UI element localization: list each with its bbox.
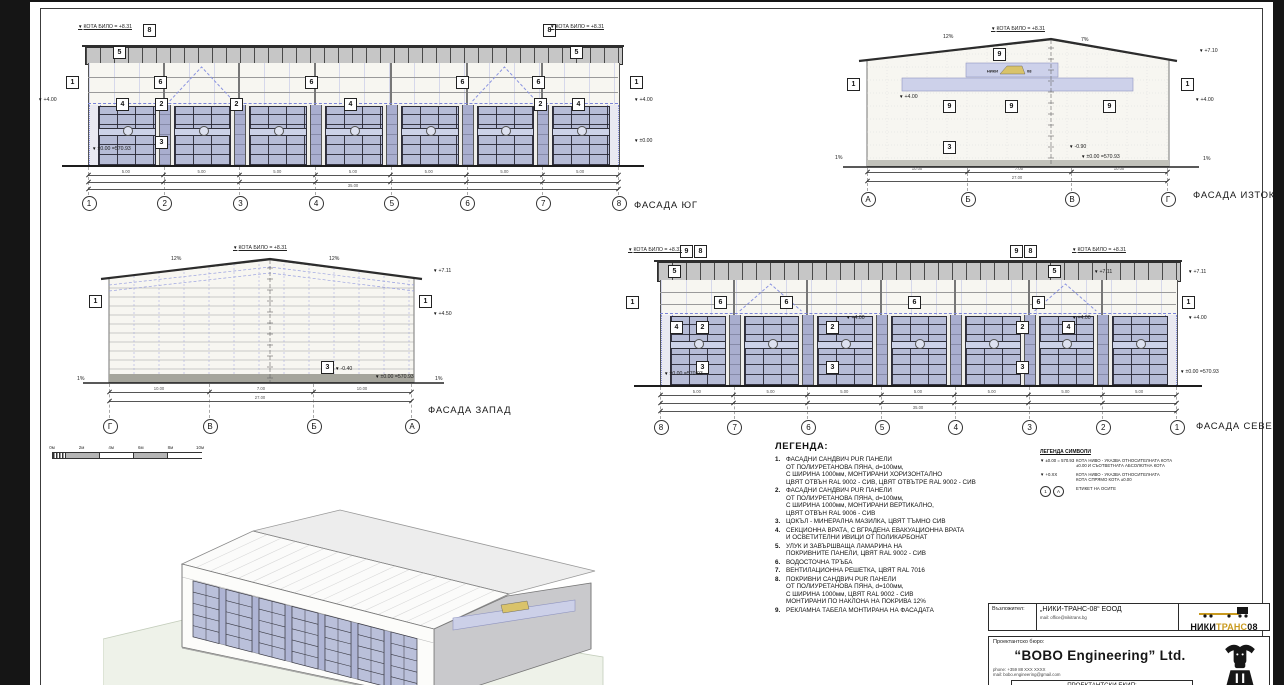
note-text: +4.50 xyxy=(438,311,451,317)
level-note: ▼КОТА БИЛО = +8.31 xyxy=(628,247,682,253)
truck-icon xyxy=(1193,605,1255,618)
level-flag-icon: ▼ xyxy=(92,146,96,151)
scale-label: 4м xyxy=(103,445,119,450)
level-flag-icon: ▼ xyxy=(1072,315,1076,320)
dim-total: 27.00 xyxy=(250,395,270,400)
callout-1: 1 xyxy=(847,78,860,91)
callout-2: 2 xyxy=(696,321,709,334)
symbol-text: ЕТИКЕТ НА ОСИТЕ xyxy=(1076,486,1116,491)
dimension-line xyxy=(867,181,1167,182)
callout-1: 1 xyxy=(1182,296,1195,309)
legend-item-text: СЕКЦИОННА ВРАТА, С ВГРАДЕНА ЕВАКУАЦИОННА… xyxy=(786,527,964,542)
callout-5: 5 xyxy=(570,46,583,59)
elevation-note: ▼±0.00 =570.93 xyxy=(375,374,414,380)
scale-label: 6м xyxy=(133,445,149,450)
legend-item-text: ВОДОСТОЧНА ТРЪБА xyxy=(786,559,853,567)
legend-item-number: 4. xyxy=(775,527,786,542)
legend-item-number: 2. xyxy=(775,487,786,517)
elevation-note: 1% xyxy=(1203,156,1211,162)
elevation-note: ▼+4.00 xyxy=(1072,315,1091,321)
callout-3: 3 xyxy=(826,361,839,374)
legend-item: 7.ВЕНТИЛАЦИОННА РЕШЕТКА, ЦВЯТ RAL 7016 xyxy=(775,567,1050,575)
grid-bubble: Б xyxy=(961,192,976,207)
logo-part3: 08 xyxy=(1247,622,1257,632)
elevation-note: ▼+4.00 xyxy=(1195,97,1214,103)
note-text: +7.11 xyxy=(1099,269,1112,275)
nikitrans-logo: НИКИТРАНС08 xyxy=(1179,604,1269,630)
elevation-note: ▼+4.00 xyxy=(899,94,918,100)
legend-item-text: ФАСАДНИ САНДВИЧ PUR ПАНЕЛИ ОТ ПОЛИУРЕТАН… xyxy=(786,456,976,486)
scale-segment xyxy=(133,453,168,458)
callout-5: 5 xyxy=(668,265,681,278)
callout-4: 4 xyxy=(116,98,129,111)
elevation-note: 1% xyxy=(77,376,85,382)
symbols-legend-items: ▼ ±0.00 = 570.93КОТА НИВО - УКАЗВА ОТНОС… xyxy=(1040,458,1220,497)
note-text: ±0.00 =570.93 xyxy=(97,146,130,152)
callout-8: 8 xyxy=(694,245,707,258)
level-flag-icon: ▼ xyxy=(846,315,850,320)
elevation-note: ▼+4.00 xyxy=(38,97,57,103)
elevation-note: ▼+4.50 xyxy=(433,311,452,317)
note-text: КОТА БИЛО = +8.31 xyxy=(996,26,1045,32)
level-flag-icon: ▼ xyxy=(628,247,632,252)
elevation-note: ▼±0.00 xyxy=(634,138,652,144)
grid-bubble: А xyxy=(861,192,876,207)
symbols-legend: ЛЕГЕНДА СИМВОЛИ ▼ ±0.00 = 570.93КОТА НИВ… xyxy=(1040,449,1220,500)
note-text: КОТА БИЛО = +8.31 xyxy=(1077,247,1126,253)
title-block-client-row: Възложител: „НИКИ-ТРАНС-08“ ЕООД mail: o… xyxy=(988,603,1270,631)
callout-2: 2 xyxy=(1016,321,1029,334)
callout-4: 4 xyxy=(670,321,683,334)
callout-9: 9 xyxy=(943,100,956,113)
legend-item-number: 7. xyxy=(775,567,786,575)
dim-value: 10.00 xyxy=(1111,166,1127,171)
callout-6: 6 xyxy=(456,76,469,89)
scale-hatch xyxy=(53,453,65,458)
grid-bubble: 5 xyxy=(875,420,890,435)
legend-items: 1.ФАСАДНИ САНДВИЧ PUR ПАНЕЛИ ОТ ПОЛИУРЕТ… xyxy=(775,456,1050,614)
callout-1: 1 xyxy=(89,295,102,308)
grid-bubble: 3 xyxy=(233,196,248,211)
level-note: ▼КОТА БИЛО = +8.31 xyxy=(233,245,287,251)
elevation-note: ▼-0.40 xyxy=(335,366,352,372)
note-text: -0.40 xyxy=(340,366,352,372)
note-text: ±0.00 =570.93 xyxy=(669,371,702,377)
legend-item-text: ФАСАДНИ САНДВИЧ PUR ПАНЕЛИ ОТ ПОЛИУРЕТАН… xyxy=(786,487,934,517)
note-text: КОТА БИЛО = +8.31 xyxy=(238,245,287,251)
symbol-item: 1АЕТИКЕТ НА ОСИТЕ xyxy=(1040,486,1220,497)
symbol-text: КОТА НИВО - УКАЗВА ОТНОСИТЕЛНАТА КОТА ±0… xyxy=(1076,458,1172,469)
level-flag-icon: ▼ xyxy=(335,366,339,371)
svg-text:НИКИ: НИКИ xyxy=(987,69,998,74)
level-flag-icon: ▼ xyxy=(233,245,237,250)
legend: ЛЕГЕНДА: 1.ФАСАДНИ САНДВИЧ PUR ПАНЕЛИ ОТ… xyxy=(775,441,1050,615)
callout-6: 6 xyxy=(305,76,318,89)
grid-bubble: 8 xyxy=(654,420,669,435)
bull-emblem-icon xyxy=(1211,637,1269,685)
dim-value: 10.00 xyxy=(354,386,370,391)
note-text: 1% xyxy=(1203,156,1211,162)
note-text: 12% xyxy=(171,256,181,262)
elevation-note: ▼+7.11 xyxy=(1094,269,1112,275)
elevation-note: ▼+7.11 xyxy=(1188,269,1206,275)
facade-label: ФАСАДА ЮГ xyxy=(634,200,698,211)
level-flag-icon: ▼ xyxy=(38,97,42,102)
bureau-cell: Проектантско бюро: “BOBO Engineering” Lt… xyxy=(989,637,1211,685)
note-text: 1% xyxy=(835,155,843,161)
note-text: +4.00 xyxy=(43,97,56,103)
symbol-glyph: ▼ +0.XX xyxy=(1040,472,1076,477)
callout-2: 2 xyxy=(230,98,243,111)
symbol-item: ▼ +0.XXКОТА НИВО - УКАЗВА ОТНОСИТЕЛНАТА … xyxy=(1040,472,1220,483)
callout-8: 8 xyxy=(1024,245,1037,258)
note-text: -0.90 xyxy=(1074,144,1086,150)
client-cell: „НИКИ-ТРАНС-08“ ЕООД mail: office@nikitr… xyxy=(1037,604,1179,630)
elevation-note: 12% xyxy=(943,34,953,40)
grid-bubble: 8 xyxy=(612,196,627,211)
grid-bubble: 6 xyxy=(460,196,475,211)
level-flag-icon: ▼ xyxy=(1199,48,1203,53)
elevation-note: ▼+4.00 xyxy=(846,315,865,321)
callout-6: 6 xyxy=(1032,296,1045,309)
level-flag-icon: ▼ xyxy=(1094,269,1098,274)
facade-north: 876543215.005.005.005.005.005.005.0035.0… xyxy=(624,243,1273,448)
facade-west: ГВБА10.007.0010.0027.00113▼КОТА БИЛО = +… xyxy=(83,243,513,443)
legend-item-text: ПОКРИВНИ САНДВИЧ PUR ПАНЕЛИ ОТ ПОЛИУРЕТА… xyxy=(786,576,926,606)
level-flag-icon: ▼ xyxy=(1072,247,1076,252)
logo-part1: НИКИ xyxy=(1190,622,1216,632)
title-block: Възложител: „НИКИ-ТРАНС-08“ ЕООД mail: o… xyxy=(988,600,1270,685)
note-text: 12% xyxy=(943,34,953,40)
symbol-text: КОТА НИВО - УКАЗВА ОТНОСИТЕЛНАТА КОТА СП… xyxy=(1076,472,1160,483)
note-text: +4.00 xyxy=(1077,315,1090,321)
note-text: 12% xyxy=(329,256,339,262)
legend-item: 6.ВОДОСТОЧНА ТРЪБА xyxy=(775,559,1050,567)
dim-value: 10.00 xyxy=(151,386,167,391)
symbols-legend-title: ЛЕГЕНДА СИМВОЛИ xyxy=(1040,449,1220,455)
dim-value: 7.00 xyxy=(1011,166,1027,171)
note-text: +4.00 xyxy=(904,94,917,100)
note-text: +4.00 xyxy=(639,97,652,103)
elevation-note: ▼+7.11 xyxy=(433,268,451,274)
callout-3: 3 xyxy=(943,141,956,154)
note-text: ±0.00 =570.93 xyxy=(1086,154,1119,160)
note-text: +4.00 xyxy=(1193,315,1206,321)
callout-6: 6 xyxy=(714,296,727,309)
title-block-bureau-row: Проектантско бюро: “BOBO Engineering” Lt… xyxy=(988,636,1270,685)
callout-4: 4 xyxy=(1062,321,1075,334)
grid-bubble: 7 xyxy=(536,196,551,211)
level-flag-icon: ▼ xyxy=(433,311,437,316)
note-text: +4.00 xyxy=(1200,97,1213,103)
legend-item-number: 8. xyxy=(775,576,786,606)
grid-bubble: Б xyxy=(307,419,322,434)
note-text: ±0.00 =570.93 xyxy=(380,374,413,380)
level-flag-icon: ▼ xyxy=(991,26,995,31)
level-flag-icon: ▼ xyxy=(634,97,638,102)
callout-5: 5 xyxy=(1048,265,1061,278)
bureau-name: “BOBO Engineering” Ltd. xyxy=(993,648,1207,663)
scale-segment xyxy=(65,453,100,458)
level-flag-icon: ▼ xyxy=(634,138,638,143)
elevation-note: ▼±0.00 =570.93 xyxy=(1081,154,1120,160)
level-flag-icon: ▼ xyxy=(1195,97,1199,102)
grid-bubble: 2 xyxy=(1096,420,1111,435)
level-note: ▼КОТА БИЛО = +8.31 xyxy=(550,24,604,30)
callout-8: 8 xyxy=(143,24,156,37)
note-text: +7.11 xyxy=(1193,269,1206,275)
client-mail: mail: office@nikitrans.bg xyxy=(1040,615,1175,620)
callout-1: 1 xyxy=(419,295,432,308)
callout-9: 9 xyxy=(1005,100,1018,113)
callout-6: 6 xyxy=(780,296,793,309)
callout-1: 1 xyxy=(626,296,639,309)
client-name: „НИКИ-ТРАНС-08“ ЕООД xyxy=(1040,606,1175,613)
logo-text: НИКИТРАНС08 xyxy=(1182,623,1266,632)
callout-6: 6 xyxy=(532,76,545,89)
elevation-note: ▼-0.90 xyxy=(1069,144,1086,150)
note-text: +4.00 xyxy=(851,315,864,321)
grid-bubble: 4 xyxy=(309,196,324,211)
bracing-overlay xyxy=(624,243,1273,448)
dimension-line xyxy=(109,392,411,393)
scale-label: 8м xyxy=(162,445,178,450)
callout-1: 1 xyxy=(1181,78,1194,91)
level-flag-icon: ▼ xyxy=(433,268,437,273)
grid-bubble: 1 xyxy=(1170,420,1185,435)
facade-east: НИКИ08АБВГ10.007.0010.0027.009999113▼КОТ… xyxy=(843,24,1273,224)
legend-item: 1.ФАСАДНИ САНДВИЧ PUR ПАНЕЛИ ОТ ПОЛИУРЕТ… xyxy=(775,456,1050,486)
callout-9: 9 xyxy=(1103,100,1116,113)
legend-item: 2.ФАСАДНИ САНДВИЧ PUR ПАНЕЛИ ОТ ПОЛИУРЕТ… xyxy=(775,487,1050,517)
callout-9: 9 xyxy=(993,48,1006,61)
level-flag-icon: ▼ xyxy=(1081,154,1085,159)
elevation-note: 7% xyxy=(1081,37,1089,43)
scale-segment xyxy=(99,453,134,458)
legend-item-number: 5. xyxy=(775,543,786,558)
bracing-overlay xyxy=(58,18,708,223)
level-note: ▼КОТА БИЛО = +8.31 xyxy=(78,24,132,30)
note-text: 7% xyxy=(1081,37,1089,43)
scale-segment xyxy=(167,453,202,458)
callout-9: 9 xyxy=(1010,245,1023,258)
iso-3d-svg xyxy=(103,497,618,685)
scale-bar-strip xyxy=(52,452,202,459)
callout-6: 6 xyxy=(908,296,921,309)
level-flag-icon: ▼ xyxy=(664,371,668,376)
grid-bubble: А xyxy=(405,419,420,434)
note-text: 1% xyxy=(77,376,85,382)
legend-item: 3.ЦОКЪЛ - МИНЕРАЛНА МАЗИЛКА, ЦВЯТ ТЪМНО … xyxy=(775,518,1050,526)
bureau-contacts: phone: +359 88 XXX XXXX mail: bobo.engin… xyxy=(993,667,1207,677)
facade-label: ФАСАДА ЗАПАД xyxy=(428,405,511,416)
svg-text:08: 08 xyxy=(1027,69,1032,74)
legend-item-number: 3. xyxy=(775,518,786,526)
symbol-item: ▼ ±0.00 = 570.93КОТА НИВО - УКАЗВА ОТНОС… xyxy=(1040,458,1220,469)
note-text: КОТА БИЛО = +8.31 xyxy=(83,24,132,30)
level-flag-icon: ▼ xyxy=(375,374,379,379)
note-text: КОТА БИЛО = +8.31 xyxy=(555,24,604,30)
grid-bubble: 6 xyxy=(801,420,816,435)
level-flag-icon: ▼ xyxy=(1180,369,1184,374)
elevation-note: ▼+4.00 xyxy=(634,97,653,103)
bureau-label: Проектантско бюро: xyxy=(993,639,1207,645)
scale-label: 0м xyxy=(44,445,60,450)
elevation-note: 12% xyxy=(329,256,339,262)
callout-6: 6 xyxy=(154,76,167,89)
dim-total: 27.00 xyxy=(1007,175,1027,180)
callout-1: 1 xyxy=(66,76,79,89)
facade-south: 123456785.005.005.005.005.005.005.0035.0… xyxy=(58,18,708,223)
dim-value: 7.00 xyxy=(253,386,269,391)
bureau-mail: mail: bobo.engineering@gmail.com xyxy=(993,672,1207,677)
level-flag-icon: ▼ xyxy=(1188,269,1192,274)
scale-bar: 0м2м4м6м8м10м xyxy=(52,445,212,459)
callout-2: 2 xyxy=(826,321,839,334)
callout-5: 5 xyxy=(113,46,126,59)
callout-2: 2 xyxy=(155,98,168,111)
elevation-note: ▼±0.00 =570.93 xyxy=(664,371,703,377)
legend-item-number: 1. xyxy=(775,456,786,486)
callout-3: 3 xyxy=(321,361,334,374)
dim-value: 10.00 xyxy=(909,166,925,171)
level-note: ▼КОТА БИЛО = +8.31 xyxy=(1072,247,1126,253)
note-text: +7.10 xyxy=(1204,48,1217,54)
grid-bubble: 3 xyxy=(1022,420,1037,435)
level-flag-icon: ▼ xyxy=(550,24,554,29)
scale-label: 2м xyxy=(74,445,90,450)
note-text: КОТА БИЛО = +8.31 xyxy=(633,247,682,253)
legend-item-number: 9. xyxy=(775,607,786,615)
dimension-line xyxy=(109,401,411,402)
note-text: ±0.00 =570.93 xyxy=(1185,369,1218,375)
elevation-note: 1% xyxy=(835,155,843,161)
note-text: ±0.00 xyxy=(639,138,652,144)
scale-label: 10м xyxy=(192,445,208,450)
team-label: ПРОЕКТАНТСКИ ЕКИП: xyxy=(1011,680,1193,685)
elevation-note: 1% xyxy=(435,376,443,382)
grid-bubble: Г xyxy=(1161,192,1176,207)
grid-bubble: 1 xyxy=(82,196,97,211)
legend-item-text: ВЕНТИЛАЦИОННА РЕШЕТКА, ЦВЯТ RAL 7016 xyxy=(786,567,925,575)
level-flag-icon: ▼ xyxy=(1069,144,1073,149)
callout-4: 4 xyxy=(344,98,357,111)
level-flag-icon: ▼ xyxy=(1188,315,1192,320)
legend-item-text: РЕКЛАМНА ТАБЕЛА МОНТИРАНА НА ФАСАДАТА xyxy=(786,607,934,615)
legend-item: 5.УЛУК И ЗАВЪРШВАЩА ЛАМАРИНА НА ПОКРИВНИ… xyxy=(775,543,1050,558)
legend-item-text: УЛУК И ЗАВЪРШВАЩА ЛАМАРИНА НА ПОКРИВНИТЕ… xyxy=(786,543,926,558)
symbol-glyph: ▼ ±0.00 = 570.93 xyxy=(1040,458,1076,463)
iso-3d-view xyxy=(103,497,618,685)
callout-1: 1 xyxy=(630,76,643,89)
grid-bubble: В xyxy=(203,419,218,434)
callout-4: 4 xyxy=(572,98,585,111)
elevation-note: 12% xyxy=(171,256,181,262)
elevation-note: ▼±0.00 =570.93 xyxy=(1180,369,1219,375)
level-flag-icon: ▼ xyxy=(899,94,903,99)
callout-3: 3 xyxy=(1016,361,1029,374)
legend-item: 4.СЕКЦИОННА ВРАТА, С ВГРАДЕНА ЕВАКУАЦИОН… xyxy=(775,527,1050,542)
grid-bubble: В xyxy=(1065,192,1080,207)
note-text: +7.11 xyxy=(438,268,451,274)
facade-label: ФАСАДА СЕВЕР xyxy=(1196,421,1273,432)
axis-bubble-icon: 1 xyxy=(1040,486,1051,497)
elevation-note: ▼+4.00 xyxy=(1188,315,1207,321)
level-flag-icon: ▼ xyxy=(78,24,82,29)
elevation-note: ▼+7.10 xyxy=(1199,48,1218,54)
symbol-glyph: 1А xyxy=(1040,486,1076,497)
callout-3: 3 xyxy=(155,136,168,149)
legend-item-text: ЦОКЪЛ - МИНЕРАЛНА МАЗИЛКА, ЦВЯТ ТЪМНО СИ… xyxy=(786,518,946,526)
grid-bubble: Г xyxy=(103,419,118,434)
legend-item-number: 6. xyxy=(775,559,786,567)
client-label: Възложител: xyxy=(989,604,1037,630)
elevation-note: ▼±0.00 =570.93 xyxy=(92,146,131,152)
dimension-line xyxy=(867,172,1167,173)
facade-label: ФАСАДА ИЗТОК xyxy=(1193,190,1273,201)
drawing-sheet: 123456785.005.005.005.005.005.005.0035.0… xyxy=(30,2,1273,685)
callout-2: 2 xyxy=(534,98,547,111)
axis-bubble-icon: А xyxy=(1053,486,1064,497)
logo-part2: ТРАНС xyxy=(1216,622,1247,632)
level-note: ▼КОТА БИЛО = +8.31 xyxy=(991,26,1045,32)
note-text: 1% xyxy=(435,376,443,382)
